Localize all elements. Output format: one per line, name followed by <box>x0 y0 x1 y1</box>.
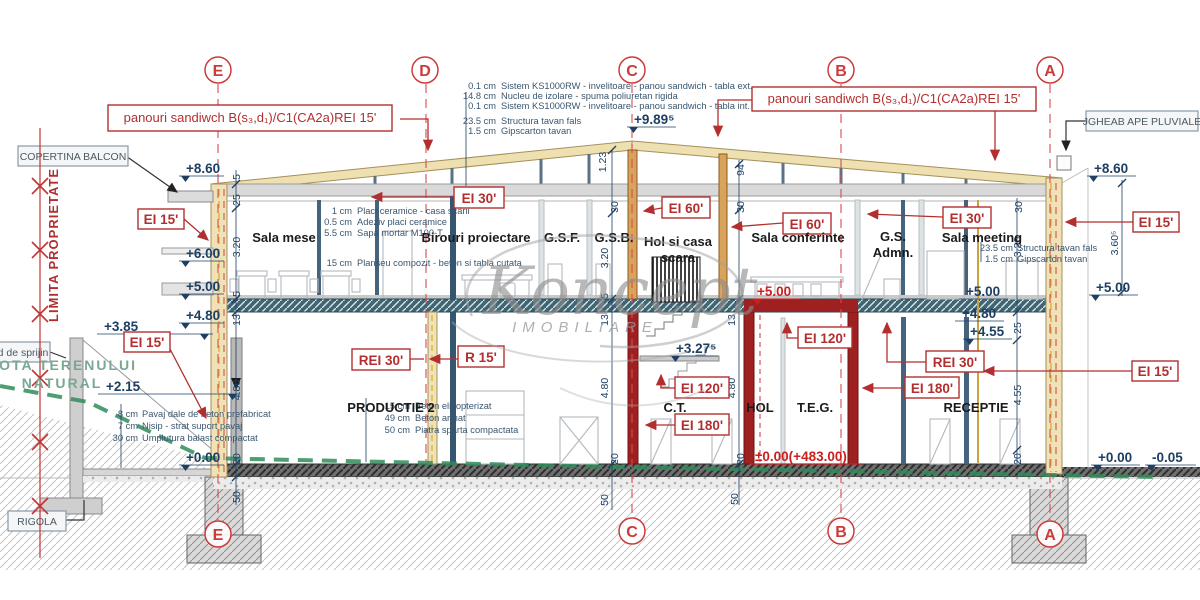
dim: 30 <box>1013 201 1025 213</box>
axis-e-top: E <box>213 63 224 80</box>
layer-size: 14.8 cm <box>463 91 496 101</box>
dim: 1.23 <box>597 152 609 173</box>
panouri-left-label: panouri sandiwch B(s₃,d₁)/C1(CA2a)REI 15… <box>124 110 377 125</box>
elevation-absolute: ±0.00(+483.00) <box>755 449 847 464</box>
axis-c-top: C <box>626 63 638 80</box>
pavement-right <box>1062 467 1200 477</box>
dim: 94 <box>735 164 747 176</box>
layer-desc: Gipscarton tavan <box>501 126 571 136</box>
layer-size: 30 cm <box>113 433 139 443</box>
axis-c-bottom: C <box>626 524 638 541</box>
dim: 50 <box>729 493 741 505</box>
dim: 4.80 <box>599 378 611 399</box>
fire-label: EI 180' <box>911 381 953 396</box>
room-label: Sala conferinte <box>751 230 844 245</box>
elevation-teg: +5.00 <box>757 284 791 299</box>
dim: 4.55 <box>1012 385 1024 406</box>
elevation: +4.80 <box>186 308 220 323</box>
layer-size: 1.5 cm <box>985 254 1013 264</box>
layer-desc: Sistem KS1000RW - invelitoare - panou sa… <box>501 81 752 91</box>
gutter <box>1057 156 1071 170</box>
dim: 20 <box>735 453 747 465</box>
fire-label: EI 15' <box>130 335 165 350</box>
ceiling-right-layers-note: 23.5 cmStructura tavan fals 1.5 cmGipsca… <box>980 242 1098 264</box>
layer-desc: Nisip - strat suport pavaj <box>142 421 242 431</box>
dim: 50 <box>599 494 611 506</box>
room-label: T.E.G. <box>797 400 833 415</box>
room-label: PRODUCTIE 2 <box>347 400 434 415</box>
layer-desc: Structura tavan fals <box>1017 243 1097 253</box>
roof-right-slope <box>632 141 1062 187</box>
elevation: +5.00 <box>966 284 1000 299</box>
layer-size: 50 cm <box>385 425 411 435</box>
fire-label: EI 30' <box>462 191 497 206</box>
elevation: +5.00 <box>1096 280 1130 295</box>
dim: 50 <box>231 491 243 503</box>
layer-size: 15 cm <box>327 258 353 268</box>
room-label: G.S. <box>880 229 906 244</box>
fire-label: EI 15' <box>1139 215 1174 230</box>
ballast-bed <box>213 477 1062 489</box>
layer-size: 8 cm <box>118 409 138 419</box>
dim: 30 <box>609 201 621 213</box>
elevation: +8.60 <box>1094 161 1128 176</box>
partition-wall-d <box>428 312 437 464</box>
dim: 25 <box>231 194 243 206</box>
axis-b-top: B <box>835 63 847 80</box>
layer-desc: Placi ceramice - casa scarii <box>357 206 470 216</box>
layer-desc: Nucleu de izolare - spuma poliuretan rig… <box>501 91 679 101</box>
fire-label: REI 30' <box>359 353 403 368</box>
elevation: +4.80 <box>962 306 996 321</box>
fire-label: EI 180' <box>681 418 723 433</box>
layer-size: 23.5 cm <box>463 116 496 126</box>
fire-label: EI 15' <box>144 212 179 227</box>
fire-label: EI 60' <box>669 201 704 216</box>
fire-label: EI 120' <box>681 381 723 396</box>
layer-desc: Piatra sparta compactata <box>415 425 519 435</box>
layer-desc: Pavaj dale de beton prefabricat <box>142 409 271 419</box>
fire-label: EI 120' <box>804 331 846 346</box>
layer-desc: Umplutura balast compactat <box>142 433 258 443</box>
layer-size: 0.1 cm <box>468 81 496 91</box>
fire-label: EI 15' <box>1138 364 1173 379</box>
axis-a-top: A <box>1044 63 1056 80</box>
rigola-label: RIGOLA <box>17 516 57 528</box>
layer-size: 0.1 cm <box>468 101 496 111</box>
dim: 5 <box>231 174 243 180</box>
dim: 13 <box>231 314 243 326</box>
dim: 3.60⁵ <box>1109 231 1121 256</box>
layer-size: 1.5 cm <box>468 126 496 136</box>
layer-size: 5.5 cm <box>324 228 352 238</box>
room-label: Sala meeting <box>942 230 1022 245</box>
copertina-label: COPERTINA BALCON <box>20 151 127 163</box>
property-limit-label: LIMITA PROPRIETATE <box>46 168 61 322</box>
elevation: +8.60 <box>186 161 220 176</box>
natural-terrain-label-1: COTA TERENULUI <box>0 357 137 373</box>
axis-e-bottom: E <box>213 527 224 544</box>
elevation: +5.00 <box>186 279 220 294</box>
elevation: +0.00 <box>186 450 220 465</box>
section-canvas: E D C B A E C B A 5 25 3.20 5 13 4.80 20… <box>0 0 1200 600</box>
layer-desc: Gipscarton tavan <box>1017 254 1087 264</box>
layer-size: 1 cm <box>332 206 352 216</box>
room-label: HOL <box>746 400 774 415</box>
pavement-left <box>83 469 213 476</box>
layer-desc: Adeziv placi ceramice <box>357 217 447 227</box>
layer-desc: Sistem KS1000RW - invelitoare - panou sa… <box>501 101 750 111</box>
copertina-slab <box>168 191 213 202</box>
layer-desc: Structura tavan fals <box>501 116 581 126</box>
layer-size: 0.5 cm <box>324 217 352 227</box>
elevation: +6.00 <box>186 246 220 261</box>
jgheab-label: JGHEAB APE PLUVIALE <box>1083 116 1200 128</box>
dim: 5 <box>231 291 243 297</box>
room-label: Sala mese <box>252 230 316 245</box>
axis-b-bottom: B <box>835 524 847 541</box>
dim: 25 <box>1012 322 1024 334</box>
layer-size: 7 cm <box>118 421 138 431</box>
elevation: +0.00 <box>1098 450 1132 465</box>
elevation: +4.55 <box>970 324 1005 339</box>
elevation: +2.15 <box>106 379 141 394</box>
fire-label: R 15' <box>465 350 497 365</box>
architectural-section-drawing: E D C B A E C B A 5 25 3.20 5 13 4.80 20… <box>0 0 1200 600</box>
natural-terrain-label-2: NATURAL <box>22 375 103 391</box>
dim: 20 <box>231 453 243 465</box>
fire-label: REI 30' <box>933 355 977 370</box>
axis-bubbles-top: E D C B A <box>205 57 1063 83</box>
dim: 20 <box>609 453 621 465</box>
room-label: Admn. <box>873 245 913 260</box>
exterior-wall-right <box>1046 178 1062 474</box>
sand-layer-left <box>83 476 213 482</box>
panouri-right-label: panouri sandiwch B(s₃,d₁)/C1(CA2a)REI 15… <box>768 91 1021 106</box>
axis-d-top: D <box>419 63 431 80</box>
dim: 3.20 <box>231 237 243 258</box>
fire-label: EI 30' <box>950 211 985 226</box>
axis-a-bottom: A <box>1044 527 1056 544</box>
watermark-subtitle: IMOBILIARE <box>512 319 658 336</box>
room-label: Birouri proiectare <box>421 230 530 245</box>
dim: 20 <box>1012 453 1024 465</box>
elevation: -0.05 <box>1152 450 1183 465</box>
elevation-ridge: +9.89⁵ <box>634 112 675 127</box>
dim: 30 <box>735 201 747 213</box>
room-label: RECEPTIE <box>943 400 1008 415</box>
roof-layers-note: 0.1 cmSistem KS1000RW - invelitoare - pa… <box>463 81 753 136</box>
